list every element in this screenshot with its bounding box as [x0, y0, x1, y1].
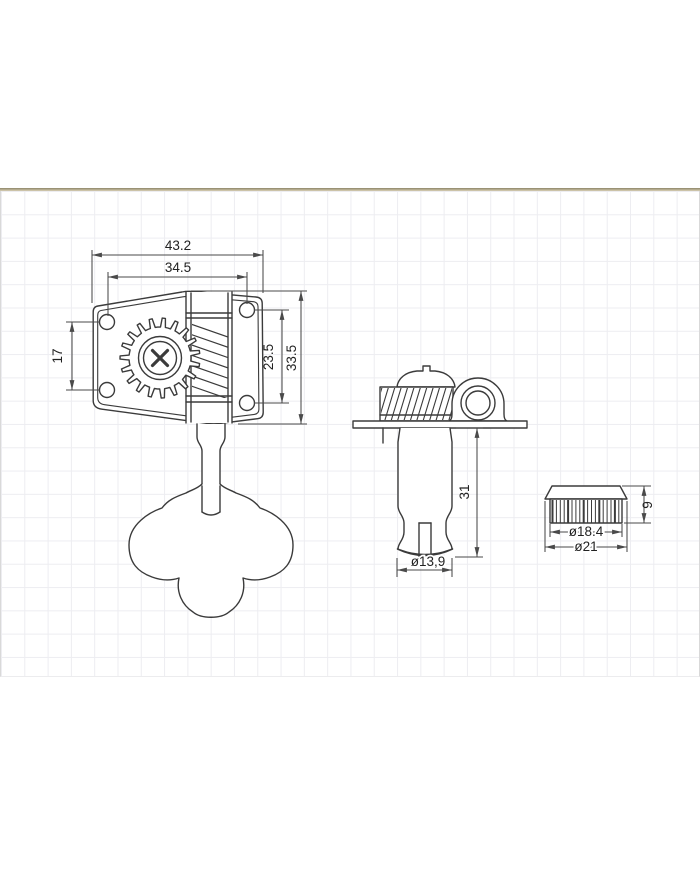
dim-barrel-diameter-label: ø18.4: [569, 524, 604, 539]
dim-overall-width-label: 43.2: [165, 238, 191, 253]
dim-left-hole-spacing-label: 17: [50, 348, 65, 363]
dim-flange-diameter-label: ø21: [574, 539, 597, 554]
dim-hole-span-width-label: 34.5: [165, 260, 191, 275]
dim-bushing-height-label: 9: [640, 501, 655, 509]
mounting-hole: [240, 303, 255, 318]
dim-post-length-label: 31: [457, 484, 472, 499]
dim-post-diameter-label: ø13,9: [411, 554, 446, 569]
bushing-view: 9 ø18.4 ø21: [545, 486, 655, 554]
technical-drawing: 43.2 34.5 17 23.5 33.5: [0, 0, 700, 869]
string-post-fill: [398, 428, 452, 556]
drawing-page: 43.2 34.5 17 23.5 33.5: [0, 0, 700, 869]
worm-cylinder-fill: [380, 387, 453, 421]
shaft-fill: [197, 424, 225, 486]
dim-right-hole-spacing-label: 23.5: [261, 344, 276, 370]
key-button-fill: [129, 484, 293, 617]
screw-dome: [397, 366, 455, 387]
flange-plate: [353, 421, 527, 428]
dim-overall-height-label: 33.5: [284, 345, 299, 371]
mounting-hole: [100, 383, 115, 398]
bushing-flange: [545, 486, 627, 499]
mounting-hole: [100, 315, 115, 330]
worm-channel-fill: [186, 292, 232, 423]
side-view: 31 ø13,9: [353, 366, 527, 577]
mounting-hole: [240, 396, 255, 411]
bracket-bearing-inner-circle: [466, 391, 490, 415]
front-view: 43.2 34.5 17 23.5 33.5: [50, 238, 307, 617]
